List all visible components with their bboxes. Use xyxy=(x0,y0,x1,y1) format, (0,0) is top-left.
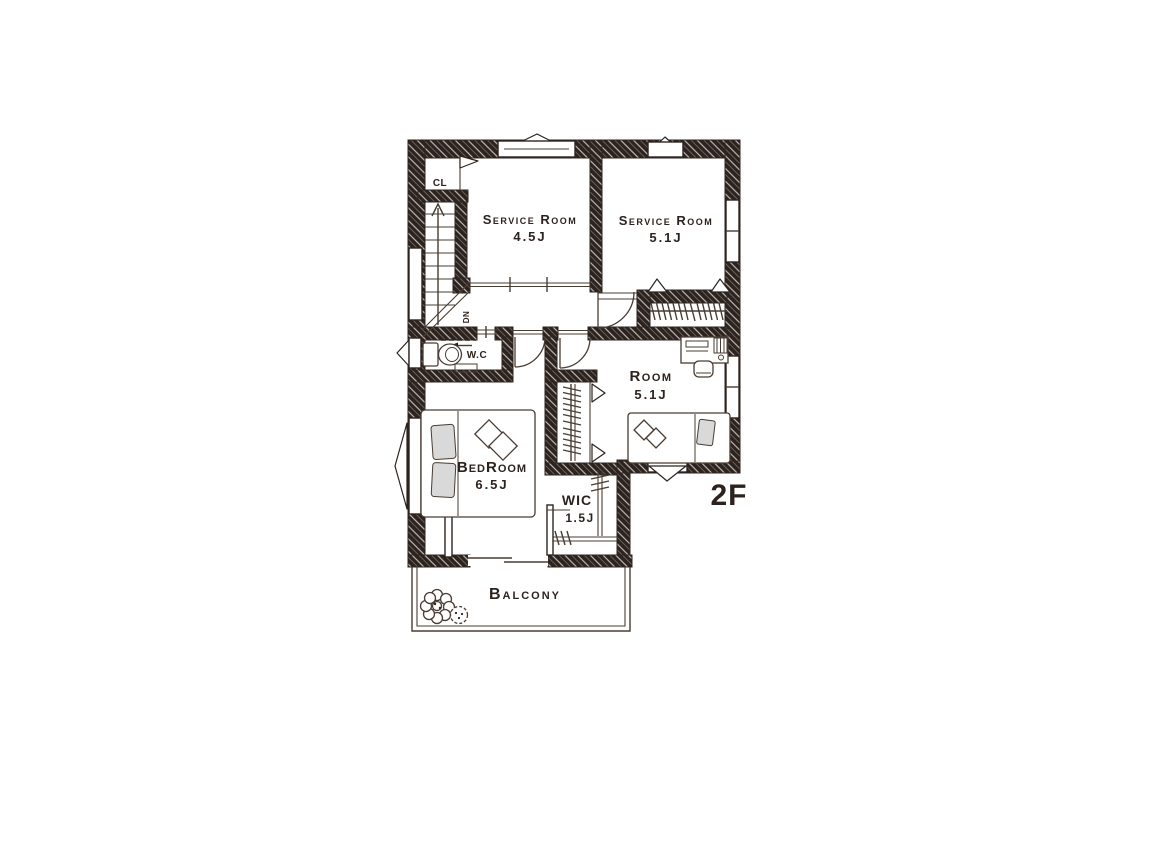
folding-door-icon xyxy=(592,444,605,462)
folding-door-icon xyxy=(592,384,605,402)
wic-name: WIC xyxy=(562,492,592,508)
service-room-a-size: 4.5J xyxy=(513,229,546,244)
door-swing-arc xyxy=(515,337,545,367)
stair-treads xyxy=(425,214,455,305)
casement-window-icon xyxy=(397,340,409,366)
door-threshold xyxy=(598,293,637,299)
plant-icon xyxy=(421,590,468,624)
folding-door-icon xyxy=(648,279,667,292)
floor-plan-drawing: CL Service Room 4.5J Service Room 5.1J R… xyxy=(0,0,1150,865)
wall-bedroom-south xyxy=(408,555,470,567)
balcony-slider-opening xyxy=(468,555,548,566)
window-wc-west xyxy=(409,338,421,368)
wall-wic-east xyxy=(617,460,630,567)
bedroom-size: 6.5J xyxy=(475,477,508,492)
hanger-ticks xyxy=(563,387,581,454)
hanger-ticks xyxy=(591,475,609,491)
wall-room-closet-top xyxy=(545,370,597,382)
hanger-ticks xyxy=(555,531,571,545)
balcony-label: Balcony xyxy=(489,586,561,603)
wc-label: W.C xyxy=(467,350,487,361)
door-swing-arc xyxy=(560,338,590,368)
service-room-a-name: Service Room xyxy=(483,212,578,227)
room-name: Room xyxy=(629,368,672,385)
door-threshold xyxy=(558,331,588,335)
plant-icon xyxy=(451,607,468,624)
casement-window-icon xyxy=(395,423,407,509)
door-swing-arc xyxy=(598,292,634,328)
window-stairs-west xyxy=(409,248,422,320)
wall-wic-south xyxy=(548,555,632,567)
chair-icon xyxy=(694,361,713,377)
open-boundary xyxy=(467,283,590,287)
wall-closet-b-left xyxy=(637,290,650,330)
single-bed-icon xyxy=(628,413,730,463)
wall-cl-bottom xyxy=(418,190,468,202)
floor-plan-canvas: CL Service Room 4.5J Service Room 5.1J R… xyxy=(0,0,1150,865)
window-service-b-north xyxy=(648,142,683,157)
wic-partition xyxy=(547,505,553,555)
desk-icon xyxy=(681,337,728,377)
stairs-direction-label: DN xyxy=(462,311,471,324)
floor-label: 2F xyxy=(710,479,747,512)
wic-size: 1.5J xyxy=(565,511,594,525)
door-threshold xyxy=(513,331,543,335)
service-room-b-size: 5.1J xyxy=(649,230,682,245)
cl-label: CL xyxy=(433,178,447,189)
wall-room-closet-bottom xyxy=(545,463,617,475)
service-room-b-name: Service Room xyxy=(619,213,714,228)
window-bedroom-west xyxy=(409,418,421,514)
wall-room-closet-west xyxy=(545,337,557,475)
wall-service-divider xyxy=(590,140,602,292)
room-size: 5.1J xyxy=(634,387,667,402)
bedroom-name: BedRoom xyxy=(457,459,527,476)
